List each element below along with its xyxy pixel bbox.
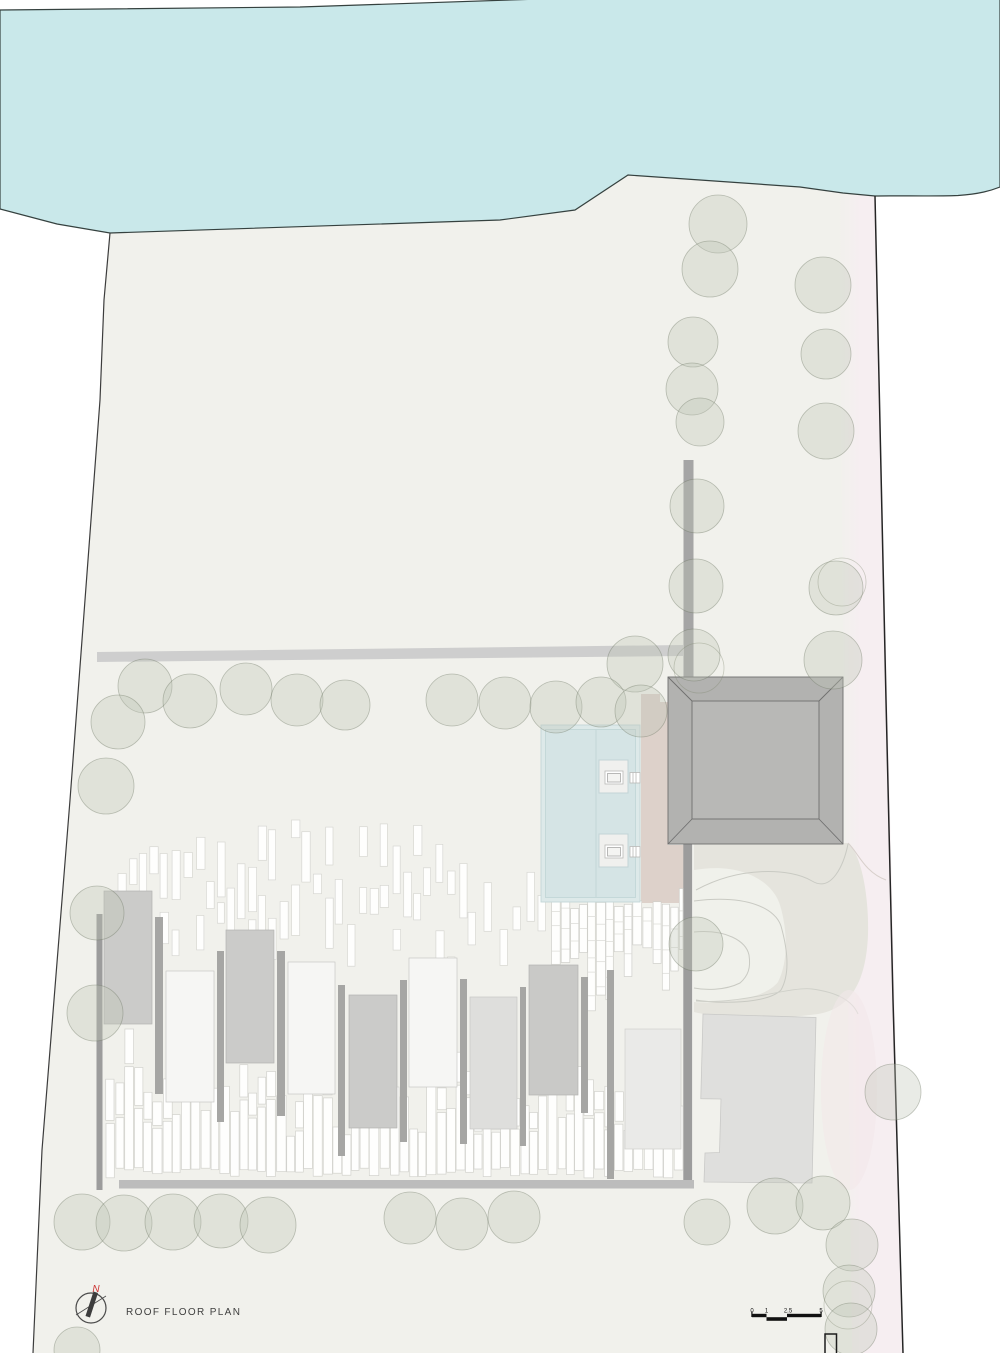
svg-text:2.5: 2.5 bbox=[784, 1309, 793, 1315]
svg-text:N: N bbox=[92, 1284, 100, 1295]
svg-text:ROOF FLOOR PLAN: ROOF FLOOR PLAN bbox=[126, 1307, 241, 1318]
